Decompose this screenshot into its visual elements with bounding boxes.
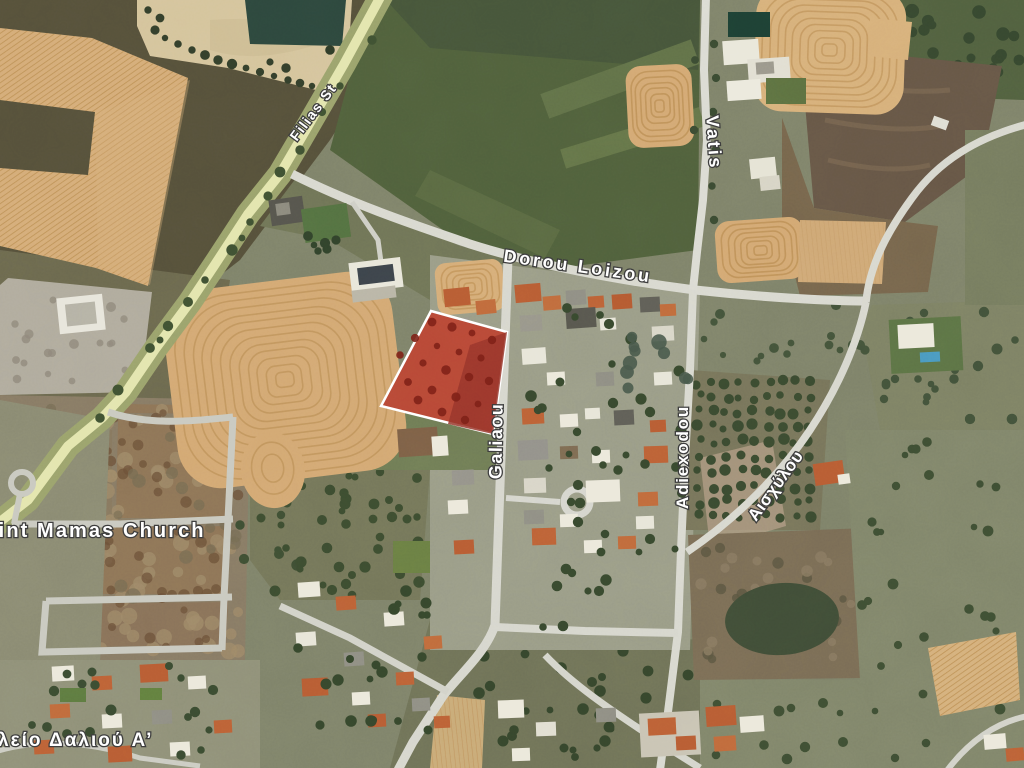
svg-text:Adiexodou: Adiexodou bbox=[673, 405, 692, 509]
svg-text:Galiaou: Galiaou bbox=[485, 402, 506, 479]
svg-text:Saint Mamas Church: Saint Mamas Church bbox=[0, 520, 206, 542]
svg-text:Vatis: Vatis bbox=[702, 115, 726, 171]
svg-text:λείο Δαλιού Α’: λείο Δαλιού Α’ bbox=[0, 730, 153, 751]
